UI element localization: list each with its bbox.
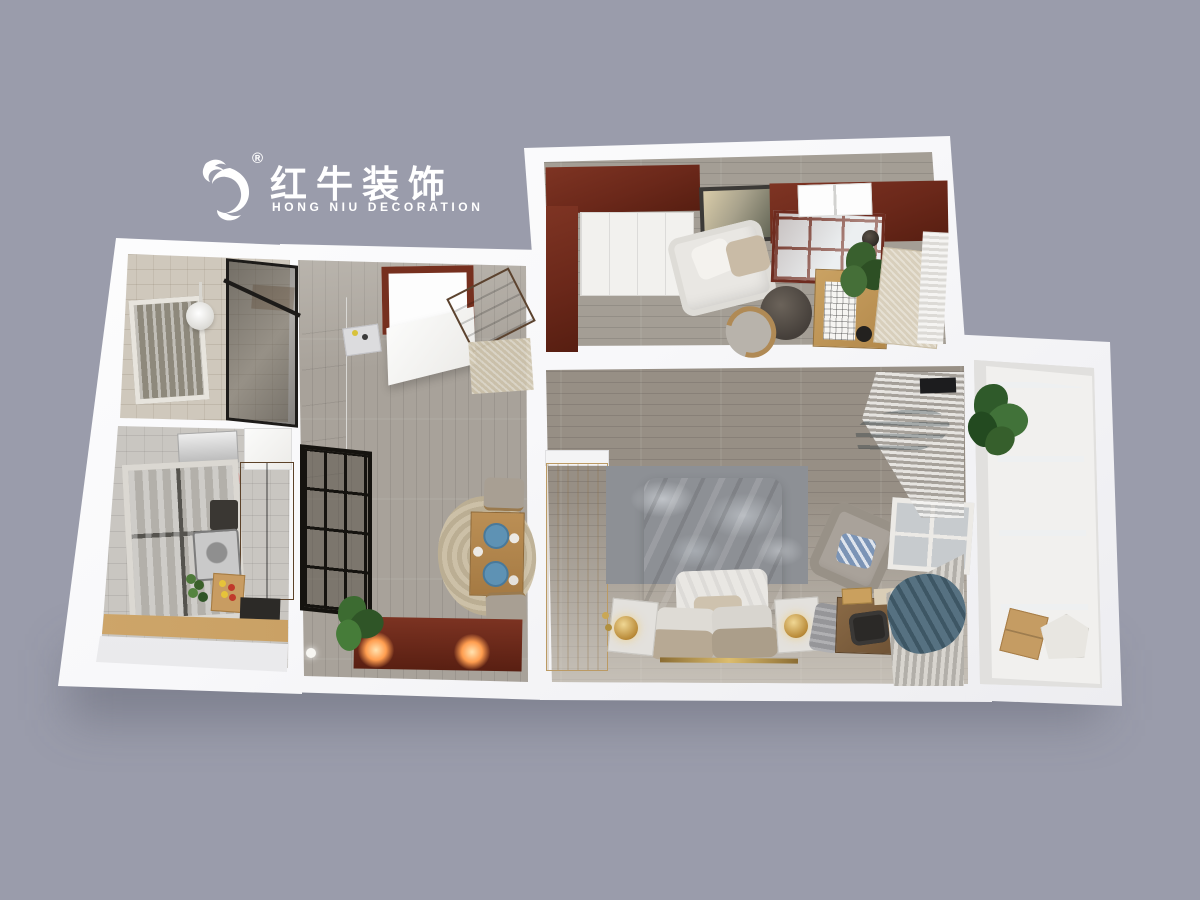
registered-mark: ® (252, 150, 263, 167)
hanging-plant (968, 382, 1030, 460)
brand-name-english: HONG NIU DECORATION (272, 200, 484, 214)
brand-logo: ® 红牛装饰 HONG NIU DECORATION (200, 150, 480, 234)
balcony (0, 0, 1200, 900)
floorplan-render: ® 红牛装饰 HONG NIU DECORATION (0, 0, 1200, 900)
